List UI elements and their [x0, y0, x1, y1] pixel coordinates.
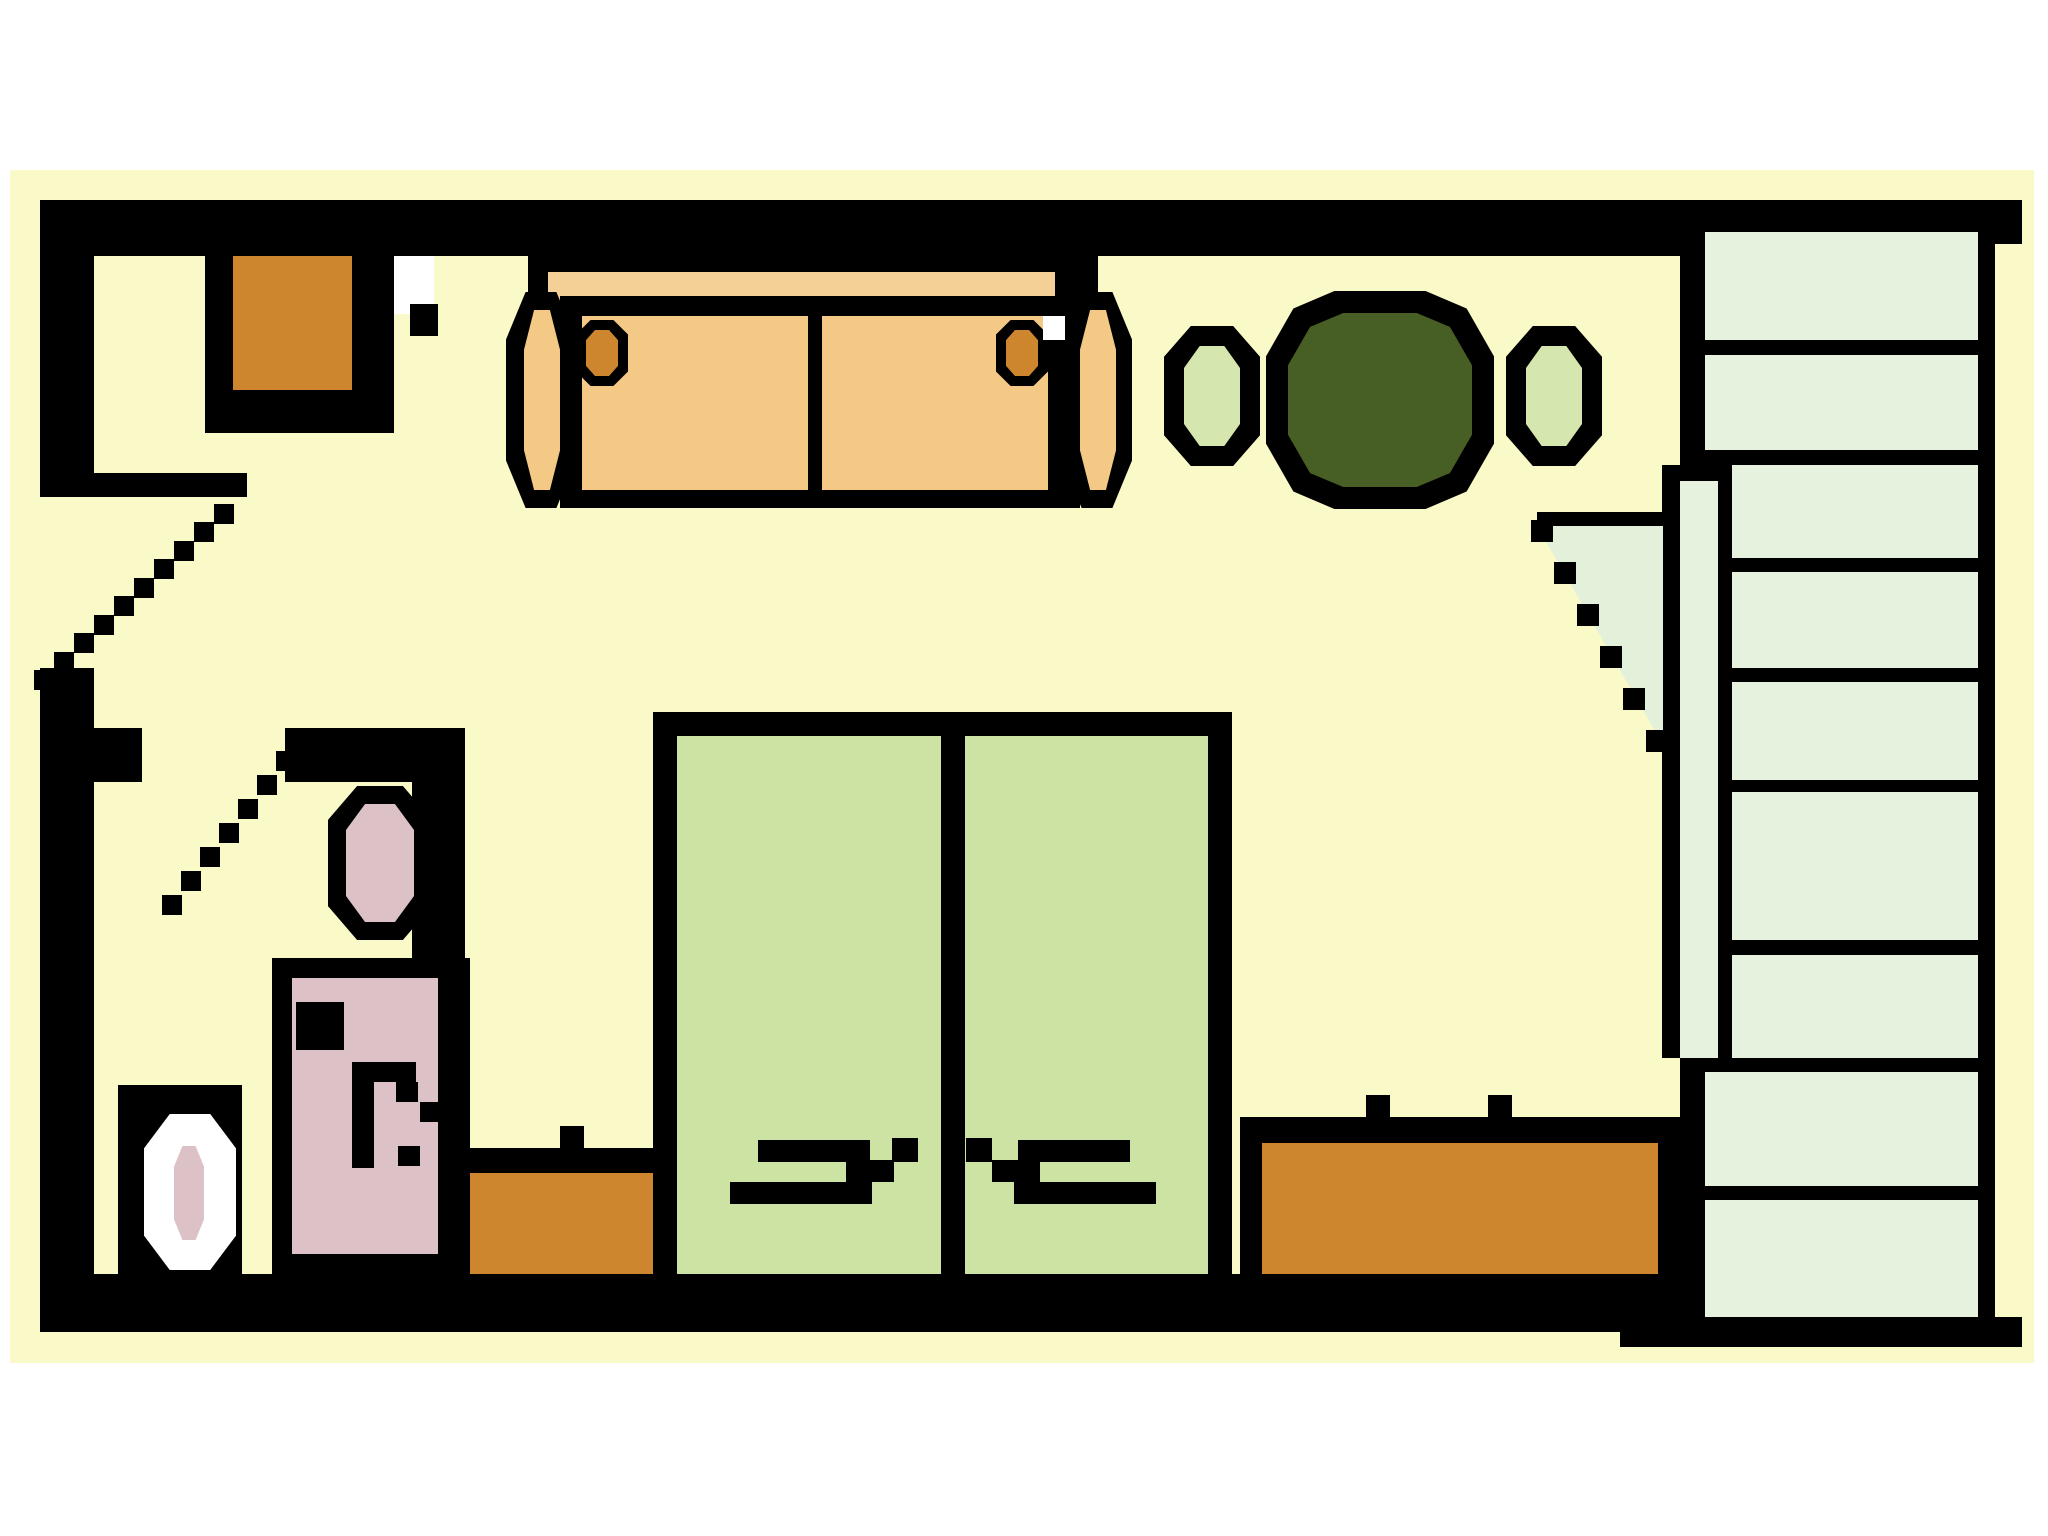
bath-door-swing-dash-1 [276, 751, 296, 771]
stair-div-4 [1732, 668, 1978, 682]
stairs-top-wall-cap [1994, 200, 2022, 244]
shower-glyph-stem [352, 1082, 374, 1168]
landing-edge-dash-5 [1623, 688, 1645, 710]
landing-edge-dash-2 [1554, 562, 1576, 584]
sofa-arm-left [524, 310, 560, 490]
stairs-base [1677, 1317, 2022, 1347]
sofa-pillow-left [586, 330, 618, 376]
counter-tick-1 [1366, 1095, 1390, 1117]
bath-door-swing-dash-6 [181, 871, 201, 891]
stair-div-6 [1732, 940, 1978, 955]
stair-div-3 [1732, 558, 1978, 572]
bath-door-swing-dash-7 [162, 895, 182, 915]
stair-wide-step-1 [1705, 1072, 1978, 1186]
dresser-bottom-border [205, 390, 394, 433]
landing-edge-dash-1 [1531, 520, 1553, 542]
shower-glyph-dot-1 [396, 1082, 418, 1102]
entry-door-swing-dash-4 [154, 559, 174, 579]
entry-door-swing-dash-7 [94, 615, 114, 635]
entry-door-swing-dash-2 [194, 522, 214, 542]
stair-tread-3 [1732, 465, 1978, 558]
stair-div-2 [1705, 450, 1978, 465]
sink [346, 804, 414, 922]
sofa-pillow-right [1006, 330, 1038, 376]
nightstand-tick [560, 1126, 584, 1148]
stairs-left-stringer [1680, 232, 1705, 472]
stairs-lower-left-border [1680, 1072, 1705, 1317]
wall-bottom [40, 1274, 1620, 1332]
counter [1262, 1143, 1658, 1274]
bed-left-blanket-step [846, 1160, 894, 1182]
entry-door-swing-dash-6 [114, 596, 134, 616]
stair-tread-6 [1732, 792, 1978, 940]
stair-wide-div [1705, 1186, 1978, 1200]
shower-drain [296, 1002, 344, 1050]
sofa-arm-right [1080, 310, 1116, 490]
bath-wall-jamb [94, 728, 142, 782]
bed-right-blanket-bar-1 [1018, 1140, 1130, 1162]
nightstand [470, 1173, 655, 1274]
entry-door-swing-dash-1 [214, 504, 234, 524]
stairs-mid-sep [1680, 1058, 1978, 1072]
bed-left-blanket-bar-1 [758, 1140, 870, 1162]
dining-table [1288, 313, 1472, 487]
stair-div-5 [1732, 780, 1978, 792]
stair-rail [1680, 481, 1718, 1058]
stair-tread-2 [1705, 355, 1978, 450]
stair-tread-5 [1732, 682, 1978, 780]
bath-door-swing-dash-4 [219, 823, 239, 843]
bath-door-swing-dash-5 [200, 847, 220, 867]
stairs-right-stringer [1978, 232, 1995, 1317]
landing-edge-dash-4 [1600, 646, 1622, 668]
sofa-highlight-pixel [1043, 316, 1065, 340]
bath-door-swing-dash-2 [257, 775, 277, 795]
stair-div-1 [1705, 340, 1978, 355]
landing-top-line [1537, 512, 1663, 526]
stair-wide-step-2 [1705, 1200, 1978, 1317]
entry-door-swing-dash-8 [74, 633, 94, 653]
counter-tick-2 [1488, 1095, 1512, 1117]
wall-left-lower [40, 668, 94, 1332]
wall-left-upper [40, 200, 94, 497]
floor-plan [0, 0, 2048, 1536]
stool-right [1526, 346, 1582, 446]
stair-tread-7 [1732, 955, 1978, 1058]
stair-tread-4 [1732, 572, 1978, 668]
landing-edge-dash-3 [1577, 604, 1599, 626]
wall-bottom-connector [1620, 1274, 1680, 1347]
stairs-top-wall [1680, 200, 2022, 232]
shower-glyph-bar [352, 1062, 416, 1082]
door-jamb-pixel [410, 304, 438, 336]
bed-left-blanket-bar-2 [730, 1182, 872, 1204]
bed-right-blanket-bar-2 [1014, 1182, 1156, 1204]
wall-top [40, 200, 1680, 256]
bed-left-blanket-dot [892, 1138, 918, 1162]
landing-edge-dash-6 [1646, 730, 1668, 752]
dresser [233, 256, 352, 390]
stair-rail-left-line [1662, 481, 1680, 1058]
stool-left [1184, 346, 1240, 446]
entry-door-swing-dash-5 [134, 578, 154, 598]
stair-tread-1 [1705, 232, 1978, 340]
shower-glyph-dot-2 [420, 1102, 442, 1122]
toilet-seat [174, 1146, 204, 1240]
shower-glyph-dot-3 [398, 1146, 420, 1166]
entry-door-swing-dash-3 [174, 541, 194, 561]
bed-right-blanket-step [992, 1160, 1040, 1182]
bed-right-blanket-dot [966, 1138, 992, 1162]
bath-door-swing-dash-3 [238, 799, 258, 819]
stair-rail-cap [1662, 465, 1732, 481]
